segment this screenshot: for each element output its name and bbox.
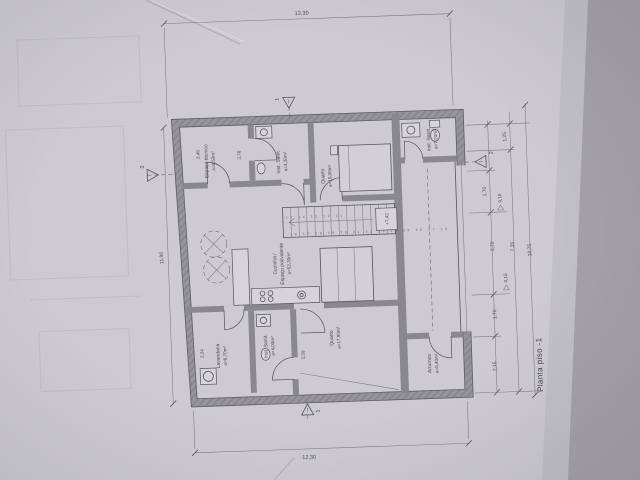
floor-plan-drawing: 15 14 13 12 11 16 17 18 19 20 21 22 23 2… [0, 0, 640, 480]
floor-plan-photo: 15 14 13 12 11 16 17 18 19 20 21 22 23 2… [0, 0, 640, 480]
photo-vignette [0, 0, 640, 480]
